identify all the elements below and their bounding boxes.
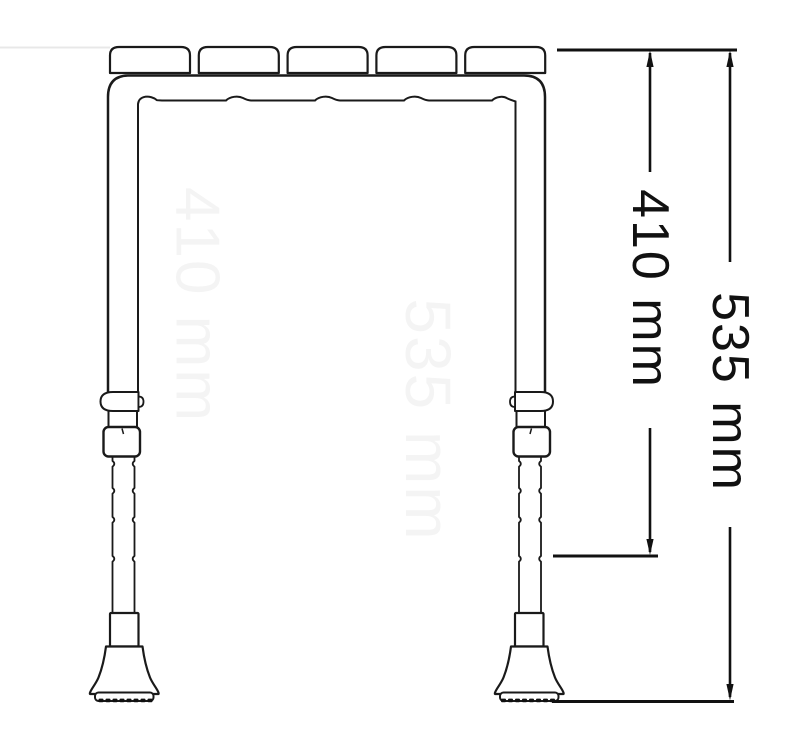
arrowhead-up: [726, 51, 733, 68]
rubber-foot: [90, 647, 159, 695]
dimension-410: 410 mm: [553, 51, 679, 557]
dimension-label-410: 410 mm: [621, 189, 679, 389]
seat-slat: [288, 47, 368, 73]
ghost-label-535: 535 mm: [392, 298, 464, 541]
seat-slat: [465, 47, 545, 73]
locking-collar: [104, 427, 141, 457]
diagram-page: 410 mm 535 mm: [0, 0, 796, 737]
seat-slat: [110, 47, 190, 73]
stool-dimension-diagram: 410 mm 535 mm: [0, 0, 796, 737]
telescoping-tube: [113, 457, 135, 614]
ghost-label-410: 410 mm: [163, 187, 232, 423]
dimension-label-535: 535 mm: [701, 292, 759, 492]
arrowhead-down: [726, 684, 733, 701]
arrowhead-down: [646, 539, 653, 555]
seat-slats: [110, 47, 545, 73]
seat-slat: [376, 47, 456, 73]
ghost-artifacts: 410 mm 535 mm: [0, 48, 464, 542]
seat-slat: [199, 47, 279, 73]
arrowhead-up: [646, 51, 653, 68]
left-leg-assembly: [90, 392, 159, 702]
clamp-pin: [139, 397, 144, 408]
right-leg-assembly: [495, 392, 564, 702]
foot-collar: [110, 613, 139, 647]
clamp-lever: [101, 392, 139, 411]
clamp-tube-section: [109, 411, 138, 428]
